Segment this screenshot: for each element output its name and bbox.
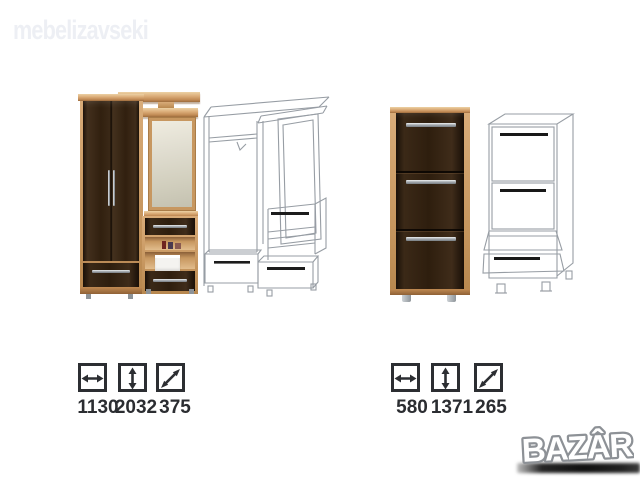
door-handle-right — [113, 170, 115, 206]
hallway-unit-photo — [78, 92, 200, 300]
flap-divider — [396, 229, 464, 231]
flap-handle-middle — [406, 180, 456, 184]
wardrobe-foot-right — [128, 294, 133, 299]
mirror-glass — [152, 121, 192, 207]
wardrobe-foot-left — [86, 294, 91, 299]
flap-handle-top — [406, 123, 456, 127]
drawer-handle — [92, 270, 130, 273]
drawer-handle — [153, 279, 187, 282]
width-arrow-icon — [391, 363, 420, 392]
schematic-handle-bars — [494, 133, 548, 260]
shoe-cabinet-schematic — [482, 105, 580, 303]
cornice-lower-shelf — [142, 108, 198, 117]
drawer-handle — [153, 225, 187, 228]
decor-item — [168, 242, 173, 249]
schematic-lines — [204, 97, 329, 296]
wardrobe-drawer — [83, 263, 139, 287]
flap-divider — [396, 171, 464, 173]
door-handle-left — [108, 170, 110, 206]
schematic-handle-bars — [214, 212, 309, 270]
height-arrow-icon — [118, 363, 147, 392]
cabinet-foot-right — [189, 289, 194, 294]
open-shelf-upper — [145, 237, 195, 250]
width-arrow-icon — [78, 363, 107, 392]
open-shelf-lower — [145, 252, 195, 269]
wardrobe-doors — [83, 101, 139, 261]
cabinet-right-edge — [464, 113, 470, 289]
depth-arrow-icon — [474, 363, 503, 392]
bazar-logo: BAZÂR — [520, 424, 634, 470]
cabinet-front — [396, 113, 464, 289]
depth-value: 375 — [152, 397, 198, 419]
schematic-lines — [483, 114, 573, 293]
height-arrow-icon — [431, 363, 460, 392]
cabinet-foot-left — [402, 295, 411, 302]
lower-cabinet-bottom-drawer — [145, 271, 195, 291]
flap-handle-bottom — [406, 237, 456, 241]
bazar-logo-text: BAZÂR — [521, 426, 634, 469]
storage-box — [155, 255, 180, 271]
decor-item — [175, 243, 181, 249]
mirror-frame — [148, 117, 196, 211]
wardrobe-plinth — [80, 287, 142, 294]
depth-value: 265 — [468, 397, 514, 419]
hallway-unit-schematic — [201, 92, 333, 298]
wardrobe-top-board — [78, 94, 144, 101]
decor-item — [162, 241, 166, 249]
lower-cabinet-top-drawer — [145, 218, 195, 235]
cabinet-foot-right — [447, 295, 456, 302]
cabinet-foot-left — [146, 289, 151, 294]
shoe-cabinet-photo — [390, 107, 470, 303]
seller-watermark-text: mebelizavseki — [13, 15, 148, 46]
lower-cabinet — [142, 216, 198, 294]
depth-arrow-icon — [156, 363, 185, 392]
product-listing-image: mebelizavseki — [0, 0, 640, 480]
